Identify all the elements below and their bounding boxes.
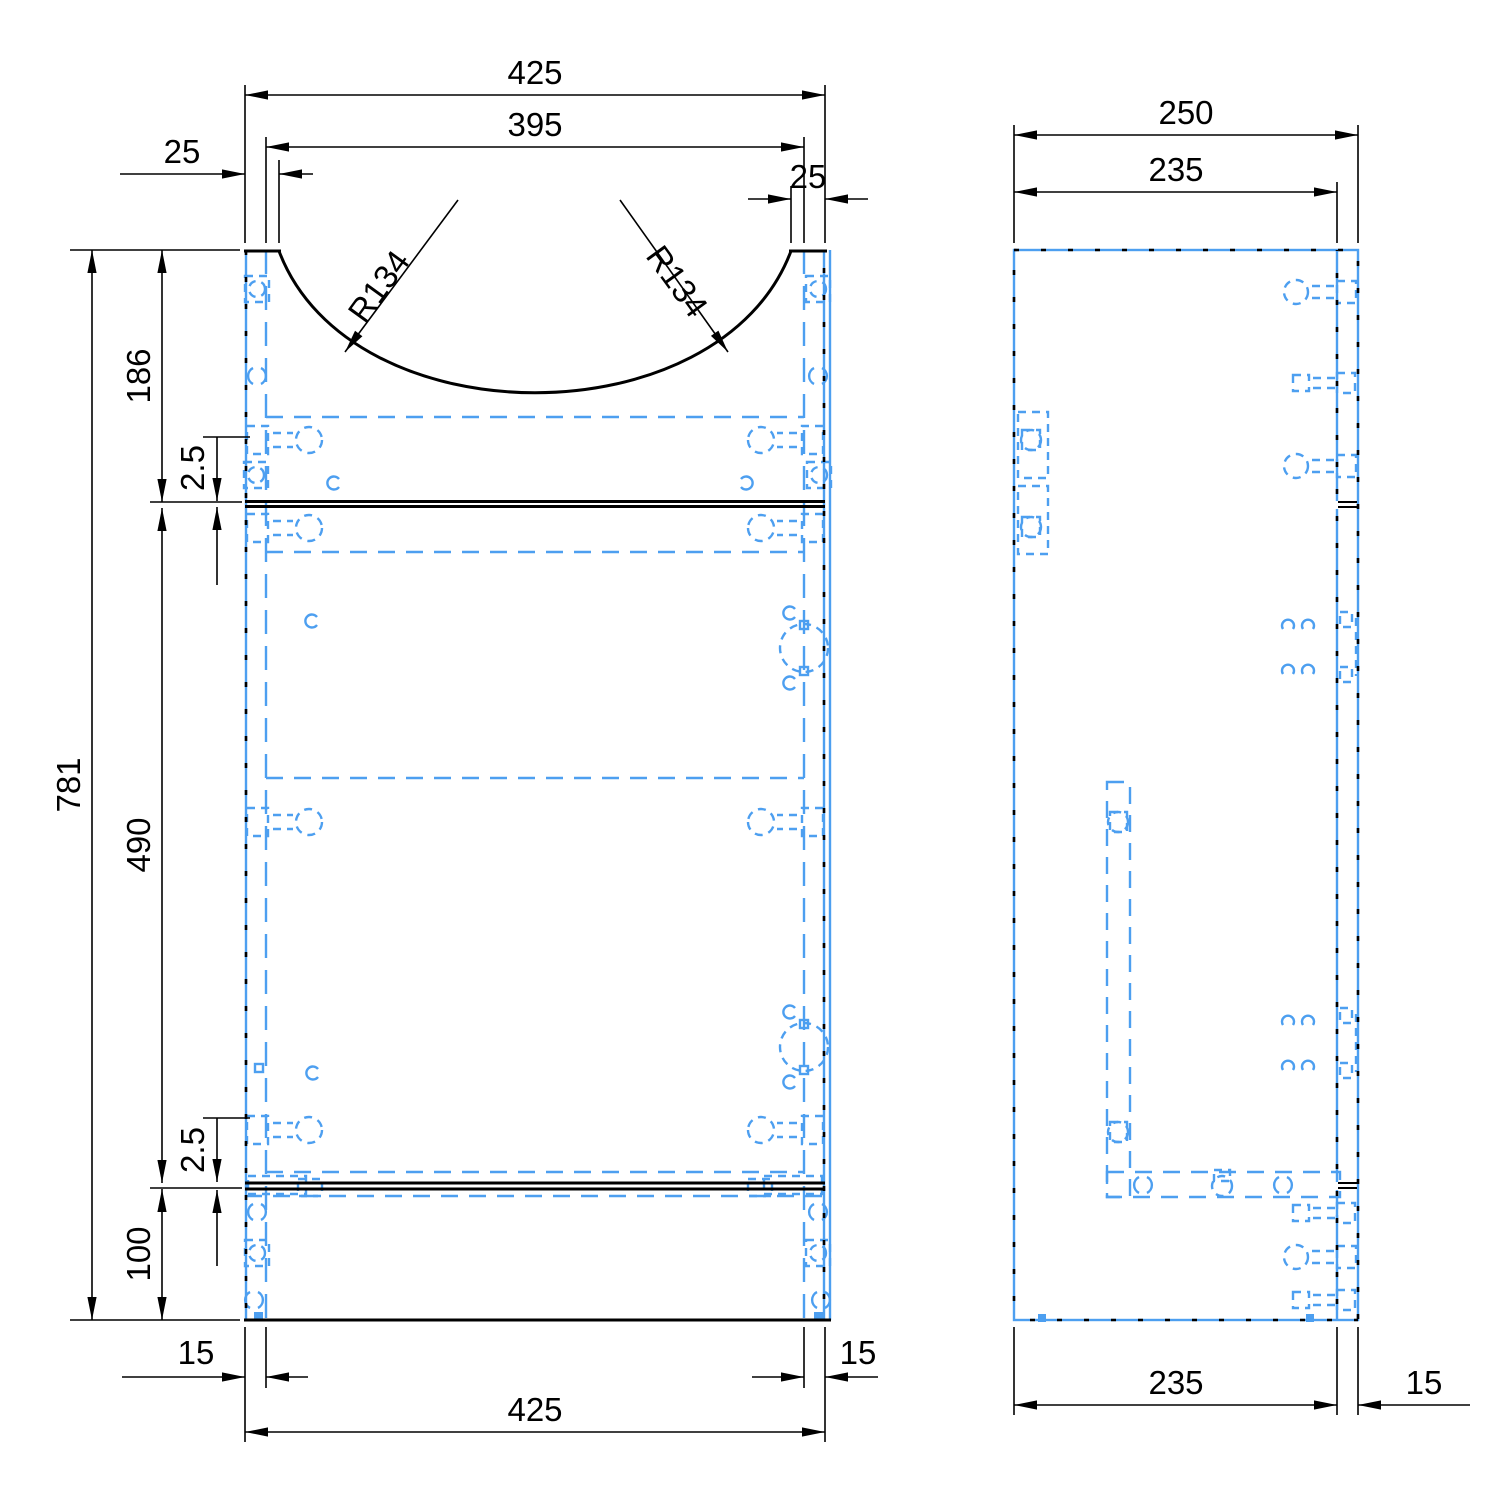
front-extension-lines: [70, 85, 825, 1442]
dim-middle-section-height: 490: [120, 817, 157, 872]
radius-callout-left: R134: [341, 200, 458, 352]
dim-basin-radius-left: R134: [341, 243, 417, 329]
front-outline: [244, 250, 831, 1320]
side-outline: [1014, 250, 1358, 1320]
dim-carcass-depth-top: 235: [1148, 151, 1203, 188]
dim-total-width-top: 425: [507, 54, 562, 91]
side-view: 250 235 235 15: [1014, 94, 1470, 1415]
dim-basin-radius-right: R134: [639, 238, 715, 324]
dim-top-section-height: 186: [120, 348, 157, 403]
cam-lock-fittings: [244, 276, 831, 1320]
side-dimensions: 250 235 235 15: [1014, 94, 1470, 1405]
dim-basin-inset-right: 25: [790, 158, 827, 195]
dim-total-depth: 250: [1158, 94, 1213, 131]
technical-drawing-canvas: R134 R134 425: [0, 0, 1500, 1500]
technical-drawing-page: R134 R134 425: [0, 0, 1500, 1500]
dim-panel-thickness-bottom-right: 15: [840, 1334, 877, 1371]
dim-basin-inset-left: 25: [164, 133, 201, 170]
dim-bottom-shelf-thickness: 2.5: [174, 1127, 211, 1173]
dim-basin-cutout-width: 395: [507, 106, 562, 143]
dim-plinth-height: 100: [120, 1226, 157, 1281]
dim-carcass-depth-bottom: 235: [1148, 1364, 1203, 1401]
side-hardware: [1018, 280, 1356, 1322]
front-hidden-panel-lines: [266, 250, 804, 1320]
dim-top-shelf-thickness: 2.5: [174, 445, 211, 491]
dim-panel-thickness-bottom-left: 15: [178, 1334, 215, 1371]
radius-callout-right: R134: [620, 200, 728, 352]
dim-total-width-bottom: 425: [507, 1391, 562, 1428]
basin-cutout-curve: [279, 251, 791, 393]
dim-total-height: 781: [50, 757, 87, 812]
front-view: R134 R134 425: [50, 54, 878, 1442]
front-dimensions: 425 395 25 25 781 186 2.5 490 2.5 100: [50, 54, 878, 1432]
dim-front-panel-thickness: 15: [1406, 1364, 1443, 1401]
front-rail-dashed-lines: [245, 417, 825, 1196]
